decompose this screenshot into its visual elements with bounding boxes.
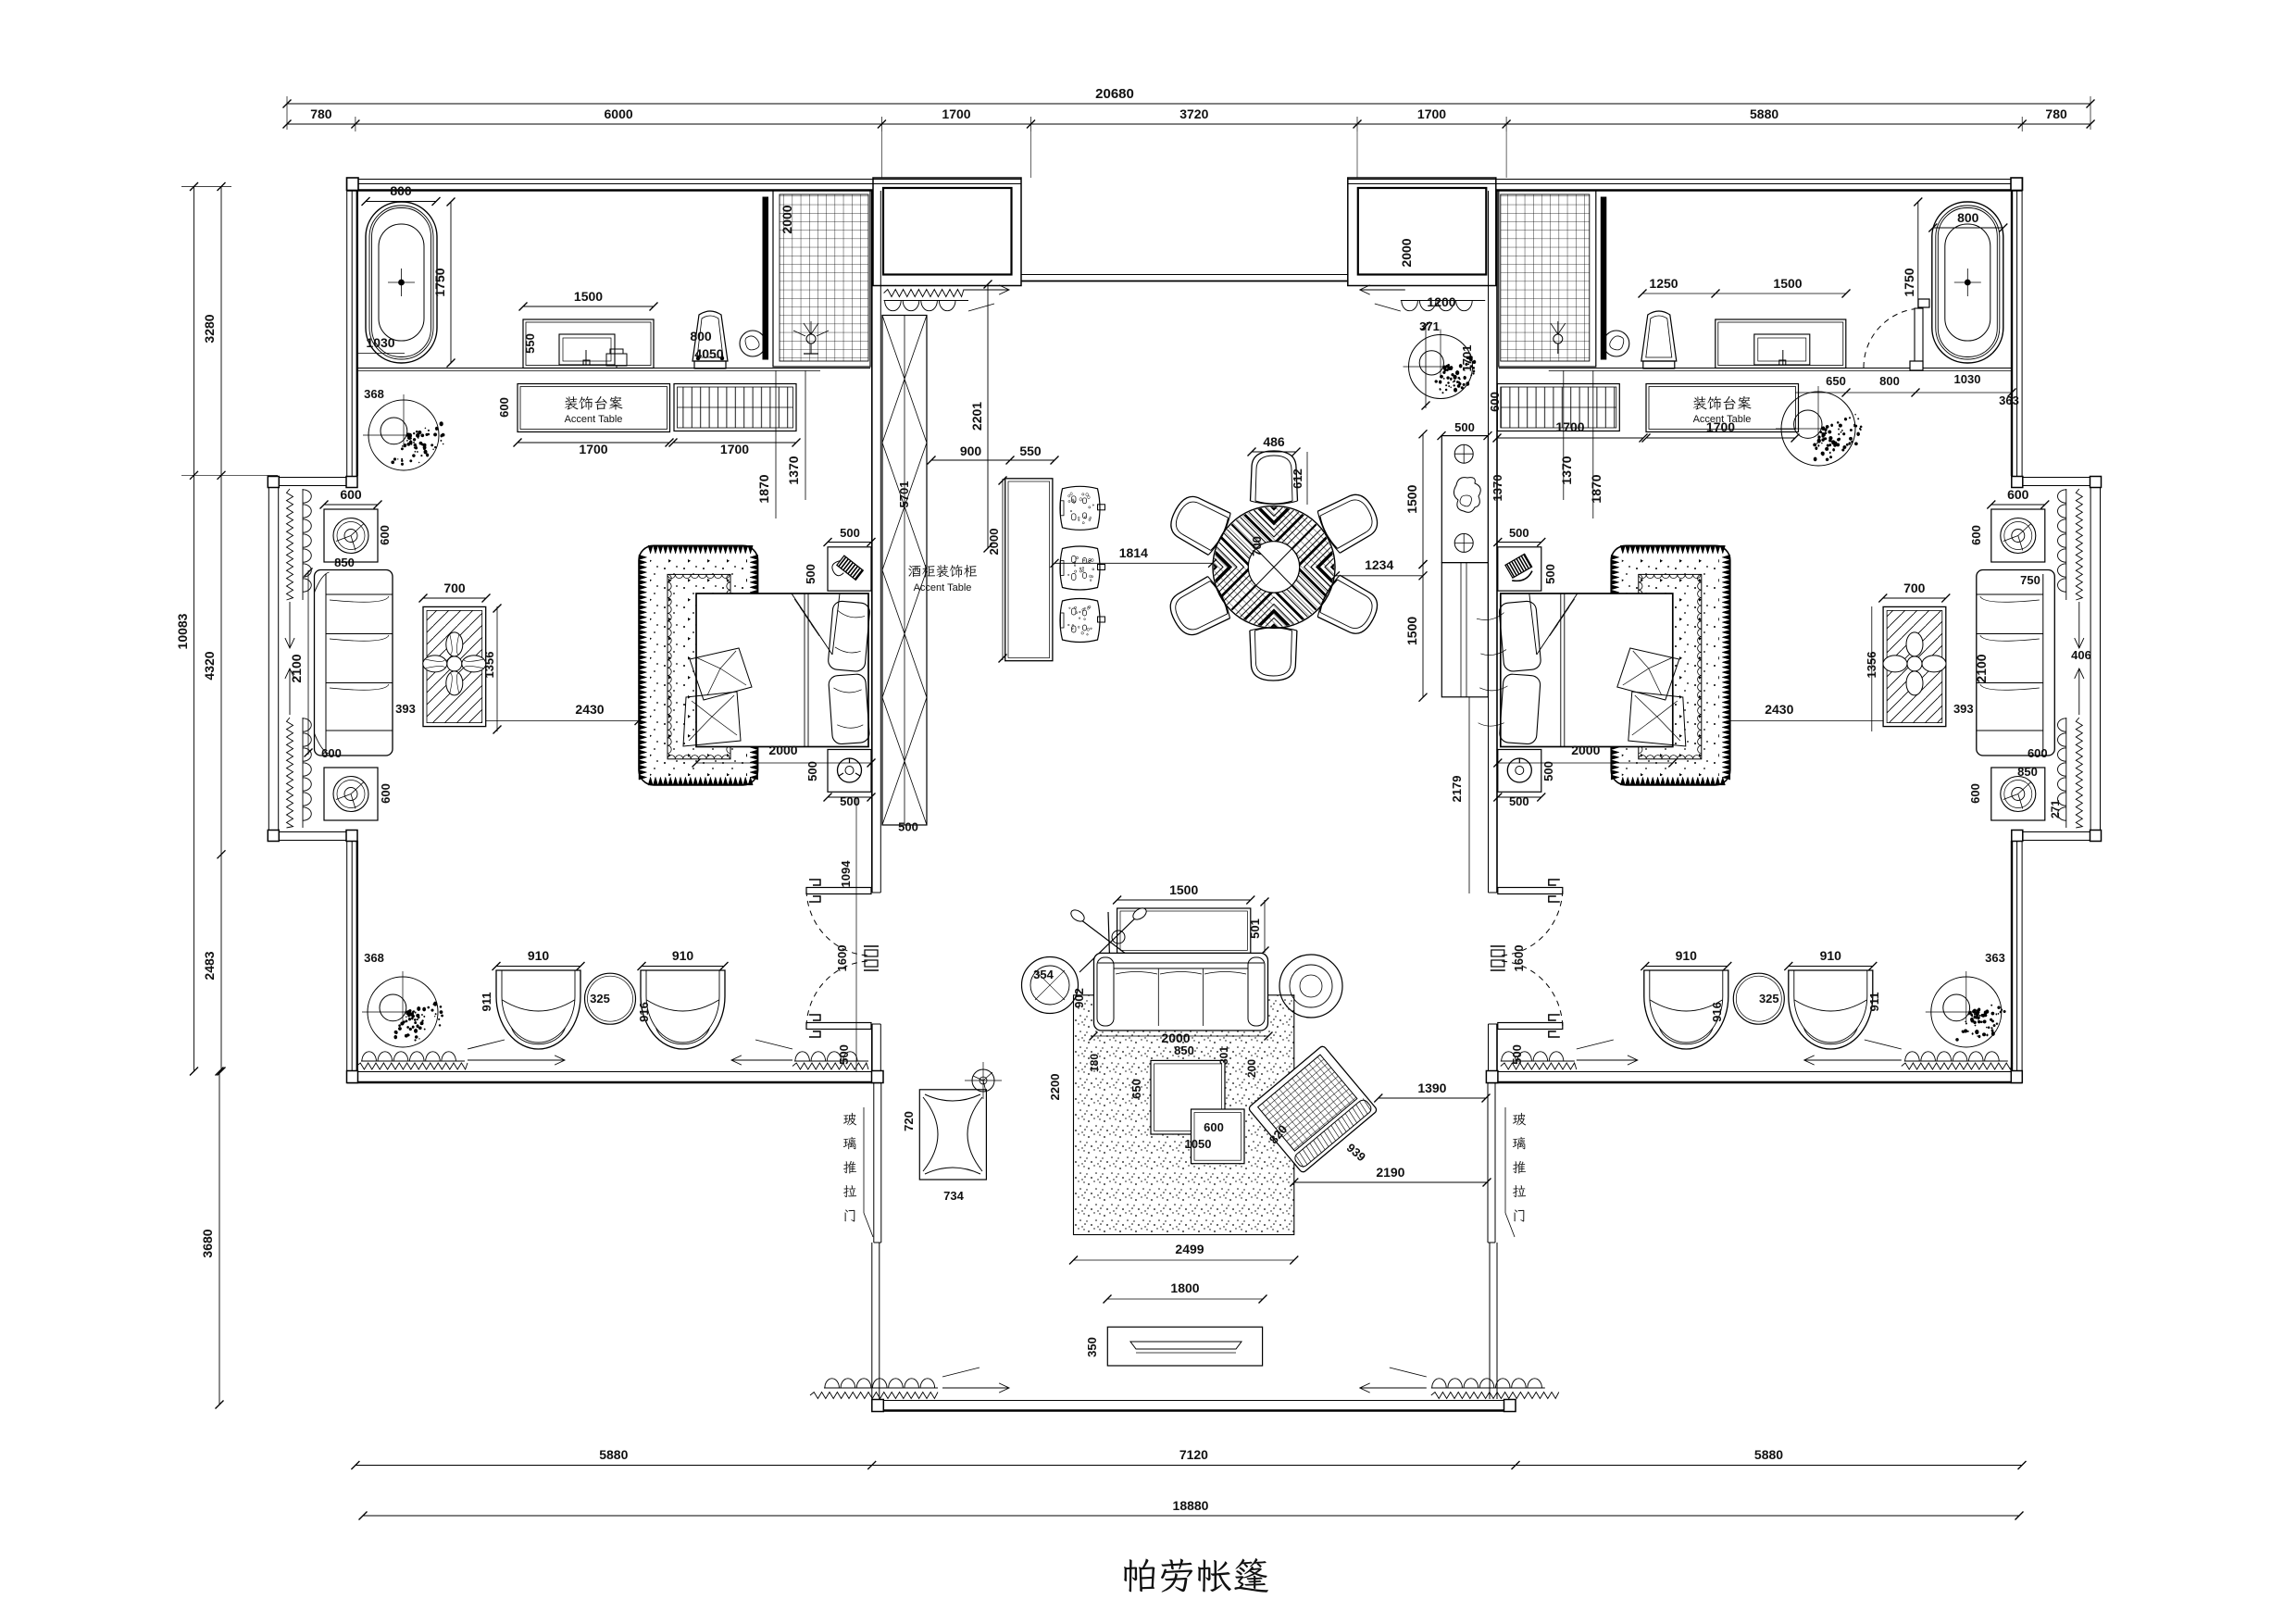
svg-text:910: 910 bbox=[528, 948, 550, 963]
svg-text:4320: 4320 bbox=[202, 651, 217, 680]
svg-text:200: 200 bbox=[1245, 1059, 1258, 1078]
svg-text:1030: 1030 bbox=[1954, 372, 1981, 386]
svg-text:501: 501 bbox=[1248, 918, 1262, 939]
svg-text:700: 700 bbox=[443, 581, 466, 595]
svg-text:900: 900 bbox=[960, 443, 982, 458]
svg-text:4050: 4050 bbox=[694, 346, 723, 361]
svg-text:180: 180 bbox=[1088, 1054, 1101, 1072]
svg-text:6000: 6000 bbox=[605, 106, 633, 121]
svg-text:1700: 1700 bbox=[1706, 419, 1735, 434]
svg-text:800: 800 bbox=[690, 329, 712, 344]
svg-text:Accent Table: Accent Table bbox=[914, 582, 972, 593]
svg-text:393: 393 bbox=[395, 702, 416, 716]
svg-text:3680: 3680 bbox=[200, 1229, 215, 1257]
svg-text:600: 600 bbox=[1204, 1120, 1224, 1134]
svg-text:368: 368 bbox=[364, 951, 384, 965]
svg-text:1234: 1234 bbox=[1365, 557, 1393, 572]
svg-text:500: 500 bbox=[804, 564, 817, 584]
svg-text:600: 600 bbox=[1488, 392, 1502, 412]
svg-text:550: 550 bbox=[523, 333, 537, 354]
svg-text:910: 910 bbox=[1820, 948, 1842, 963]
svg-text:1356: 1356 bbox=[482, 652, 496, 679]
svg-text:600: 600 bbox=[378, 525, 392, 545]
svg-text:1500: 1500 bbox=[1773, 276, 1802, 291]
svg-text:1870: 1870 bbox=[756, 474, 771, 503]
svg-text:500: 500 bbox=[1510, 1044, 1524, 1065]
svg-text:2000: 2000 bbox=[1571, 743, 1600, 757]
svg-text:600: 600 bbox=[2028, 746, 2048, 760]
svg-text:916: 916 bbox=[637, 1002, 651, 1022]
svg-text:2430: 2430 bbox=[1765, 702, 1793, 717]
svg-text:800: 800 bbox=[1957, 210, 1979, 225]
svg-text:1500: 1500 bbox=[1404, 617, 1419, 645]
svg-text:700: 700 bbox=[1250, 536, 1264, 556]
svg-text:910: 910 bbox=[672, 948, 694, 963]
svg-text:1600: 1600 bbox=[835, 945, 849, 972]
svg-text:1030: 1030 bbox=[366, 335, 394, 350]
svg-text:10083: 10083 bbox=[175, 613, 190, 649]
svg-text:2483: 2483 bbox=[202, 951, 217, 980]
svg-text:500: 500 bbox=[1454, 420, 1475, 434]
svg-text:600: 600 bbox=[1969, 525, 1983, 545]
svg-text:911: 911 bbox=[1867, 993, 1881, 1012]
svg-text:500: 500 bbox=[840, 526, 860, 540]
svg-text:2000: 2000 bbox=[768, 743, 797, 757]
svg-text:5880: 5880 bbox=[1750, 106, 1778, 121]
svg-text:600: 600 bbox=[340, 487, 362, 502]
svg-text:363: 363 bbox=[1999, 394, 2019, 407]
svg-text:500: 500 bbox=[805, 761, 819, 781]
svg-text:18880: 18880 bbox=[1173, 1498, 1209, 1513]
svg-text:800: 800 bbox=[390, 183, 412, 198]
svg-text:350: 350 bbox=[1085, 1337, 1099, 1357]
svg-text:2430: 2430 bbox=[575, 702, 604, 717]
svg-text:1370: 1370 bbox=[1559, 456, 1574, 484]
svg-text:20680: 20680 bbox=[1095, 86, 1134, 102]
svg-text:1750: 1750 bbox=[432, 268, 447, 296]
svg-text:1701: 1701 bbox=[1460, 345, 1474, 372]
svg-text:363: 363 bbox=[1985, 951, 2005, 965]
svg-text:5701: 5701 bbox=[897, 481, 911, 508]
svg-text:500: 500 bbox=[1509, 794, 1529, 808]
svg-text:850: 850 bbox=[2017, 765, 2038, 779]
svg-text:800: 800 bbox=[1879, 374, 1900, 388]
svg-text:1814: 1814 bbox=[1119, 545, 1148, 560]
svg-text:1750: 1750 bbox=[1902, 268, 1916, 296]
svg-text:650: 650 bbox=[1826, 374, 1846, 388]
svg-text:1700: 1700 bbox=[720, 442, 749, 456]
svg-text:486: 486 bbox=[1263, 434, 1285, 449]
svg-text:7120: 7120 bbox=[1179, 1447, 1208, 1462]
svg-text:1500: 1500 bbox=[1404, 484, 1419, 513]
svg-text:700: 700 bbox=[1903, 581, 1926, 595]
svg-text:780: 780 bbox=[310, 106, 332, 121]
svg-text:1370: 1370 bbox=[1491, 475, 1504, 502]
svg-text:1800: 1800 bbox=[1170, 1280, 1199, 1295]
svg-text:3720: 3720 bbox=[1179, 106, 1208, 121]
svg-text:1700: 1700 bbox=[579, 442, 607, 456]
svg-text:650: 650 bbox=[1129, 1079, 1143, 1099]
svg-text:1500: 1500 bbox=[574, 289, 603, 304]
svg-text:325: 325 bbox=[1759, 992, 1779, 1006]
svg-text:1700: 1700 bbox=[1417, 106, 1446, 121]
svg-text:720: 720 bbox=[902, 1111, 916, 1131]
svg-text:1700: 1700 bbox=[1555, 419, 1584, 434]
svg-text:406: 406 bbox=[2071, 648, 2091, 662]
svg-text:1200: 1200 bbox=[1427, 294, 1455, 309]
svg-text:2201: 2201 bbox=[969, 402, 984, 431]
svg-text:271: 271 bbox=[2049, 800, 2062, 818]
svg-text:2100: 2100 bbox=[289, 654, 304, 682]
svg-text:3280: 3280 bbox=[202, 314, 217, 343]
svg-text:2200: 2200 bbox=[1048, 1074, 1062, 1101]
svg-text:911: 911 bbox=[480, 993, 493, 1012]
svg-text:600: 600 bbox=[321, 746, 342, 760]
svg-text:301: 301 bbox=[1217, 1046, 1230, 1065]
svg-text:2100: 2100 bbox=[1974, 654, 1989, 682]
svg-text:902: 902 bbox=[1072, 988, 1086, 1008]
svg-text:1356: 1356 bbox=[1865, 652, 1878, 679]
svg-text:325: 325 bbox=[590, 992, 610, 1006]
svg-text:1250: 1250 bbox=[1649, 276, 1678, 291]
svg-text:750: 750 bbox=[2020, 573, 2040, 587]
svg-text:1870: 1870 bbox=[1589, 474, 1603, 503]
svg-text:600: 600 bbox=[2007, 487, 2029, 502]
svg-text:1700: 1700 bbox=[942, 106, 970, 121]
svg-text:780: 780 bbox=[2045, 106, 2067, 121]
svg-text:Accent Table: Accent Table bbox=[565, 414, 623, 425]
svg-text:1370: 1370 bbox=[786, 456, 801, 484]
svg-text:500: 500 bbox=[1541, 761, 1555, 781]
svg-text:2000: 2000 bbox=[987, 529, 1001, 556]
svg-text:916: 916 bbox=[1710, 1002, 1724, 1022]
svg-text:600: 600 bbox=[379, 783, 393, 804]
svg-text:393: 393 bbox=[1953, 702, 1974, 716]
svg-text:612: 612 bbox=[1291, 468, 1304, 489]
svg-text:550: 550 bbox=[1019, 443, 1042, 458]
svg-text:5880: 5880 bbox=[1754, 1447, 1783, 1462]
svg-text:354: 354 bbox=[1033, 968, 1054, 981]
svg-text:2000: 2000 bbox=[780, 205, 794, 233]
svg-text:600: 600 bbox=[1968, 783, 1982, 804]
svg-text:500: 500 bbox=[898, 820, 918, 834]
svg-text:1050: 1050 bbox=[1185, 1137, 1212, 1151]
svg-text:600: 600 bbox=[497, 397, 511, 418]
svg-text:5880: 5880 bbox=[599, 1447, 628, 1462]
svg-text:368: 368 bbox=[364, 387, 384, 401]
svg-text:1390: 1390 bbox=[1417, 1081, 1446, 1095]
svg-text:2179: 2179 bbox=[1450, 776, 1464, 803]
svg-text:500: 500 bbox=[837, 1044, 851, 1065]
svg-text:1500: 1500 bbox=[1169, 882, 1198, 897]
svg-text:500: 500 bbox=[840, 794, 860, 808]
svg-text:2190: 2190 bbox=[1376, 1165, 1404, 1180]
svg-text:1094: 1094 bbox=[839, 860, 853, 888]
svg-text:2499: 2499 bbox=[1175, 1242, 1204, 1256]
svg-text:2000: 2000 bbox=[1399, 238, 1414, 267]
svg-text:850: 850 bbox=[1174, 1043, 1194, 1057]
svg-text:500: 500 bbox=[1543, 564, 1557, 584]
svg-text:734: 734 bbox=[943, 1189, 964, 1203]
svg-text:910: 910 bbox=[1676, 948, 1698, 963]
svg-text:500: 500 bbox=[1509, 526, 1529, 540]
svg-text:1600: 1600 bbox=[1512, 945, 1526, 972]
